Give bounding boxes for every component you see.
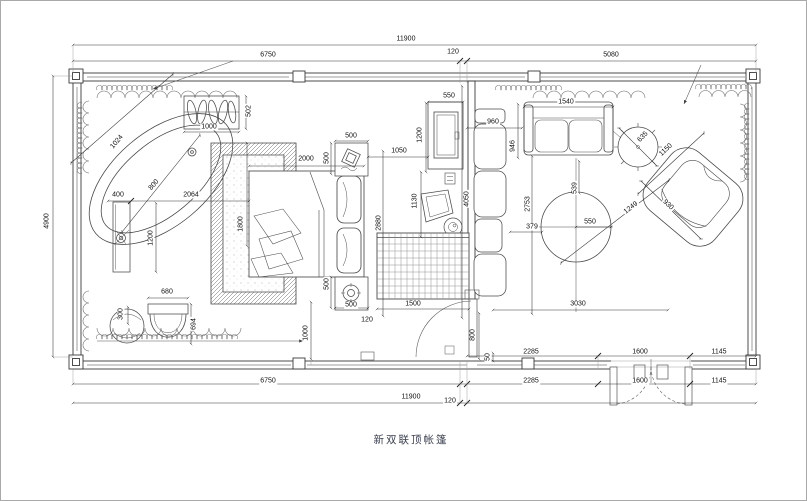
dimension-label: 4050 <box>464 190 471 208</box>
dimension-label: 500 <box>344 302 358 309</box>
dimension-label: 1600 <box>631 378 649 385</box>
dimension-label: 550 <box>583 219 597 226</box>
dimension-label: 3030 <box>569 301 587 308</box>
dimension-label: 502 <box>246 104 253 118</box>
tub-drain <box>188 148 196 156</box>
dimension-label: 11900 <box>401 394 422 401</box>
dimension-label: 1800 <box>238 215 245 233</box>
dimension-label: 800 <box>470 328 477 342</box>
dimension-label: 300 <box>118 307 125 321</box>
dimension-label: 6750 <box>259 378 277 385</box>
dimension-label: 1000 <box>303 324 310 342</box>
dimension-label: 2753 <box>525 195 532 213</box>
pillow <box>337 228 361 273</box>
walls <box>69 69 760 369</box>
nightstand-top <box>335 143 368 176</box>
stool <box>110 309 144 343</box>
dimension-label: 1145 <box>710 378 727 385</box>
bed <box>249 171 364 277</box>
dimension-label: 500 <box>344 133 358 140</box>
dimension-label: 946 <box>510 139 517 153</box>
dimension-label: 379 <box>525 224 539 231</box>
dimension-label: 4900 <box>44 212 51 230</box>
armchair <box>635 140 751 255</box>
dimension-label: 50 <box>485 352 492 362</box>
dimension-label: 120 <box>446 49 460 56</box>
lounge-chair <box>421 190 453 222</box>
tv-cabinet <box>428 102 463 169</box>
drawing-title: 新双联顶帐篷 <box>341 432 481 447</box>
dimension-label: 2064 <box>182 192 200 199</box>
switch-box <box>445 173 455 184</box>
sofa-left <box>474 109 506 296</box>
dimension-label: 11900 <box>396 36 417 43</box>
dimension-label: 1500 <box>404 301 422 308</box>
dimension-label: 2000 <box>297 156 315 163</box>
dimension-label: 120 <box>360 317 374 324</box>
dimension-label: 1200 <box>417 126 424 144</box>
toilet <box>148 304 188 337</box>
dimension-label: 2285 <box>522 349 540 356</box>
grid-rug <box>377 233 469 299</box>
double-door <box>610 358 692 405</box>
dimension-label: 1000 <box>200 124 218 131</box>
dimension-label: 1050 <box>390 148 408 155</box>
dimension-label: 1600 <box>631 349 649 356</box>
door-swing-arc <box>416 301 471 357</box>
dimension-label: 694 <box>191 317 198 331</box>
dimension-label: 550 <box>442 93 456 100</box>
door-leaf <box>610 367 617 405</box>
tv-screen <box>434 112 458 158</box>
dimension-label: 1130 <box>412 192 419 209</box>
cad-floorplan-canvas: 1190067501205080490010248001000502400206… <box>0 0 807 501</box>
dimension-label: 539 <box>572 181 579 195</box>
dimension-label: 1540 <box>557 99 575 106</box>
curtain-scallops <box>77 84 751 351</box>
dimension-label: 2285 <box>522 378 540 385</box>
dimension-lines <box>53 45 756 406</box>
dimension-label: 6750 <box>259 52 277 59</box>
dimension-label: 2880 <box>376 214 383 232</box>
sofa-top <box>524 102 613 155</box>
floorplan-drawing <box>1 1 807 501</box>
pillow <box>337 176 361 223</box>
dimension-label: 120 <box>443 398 457 405</box>
dimension-label: 680 <box>160 289 174 296</box>
vanity <box>113 202 130 272</box>
dimension-label: 1145 <box>710 349 727 356</box>
dimension-label: 5080 <box>602 52 620 59</box>
dimension-label: 960 <box>486 119 500 126</box>
columns <box>69 69 760 369</box>
dimension-label: 500 <box>324 151 331 165</box>
dimension-label: 400 <box>111 192 125 199</box>
dimension-label: 1200 <box>148 229 155 247</box>
dimension-label: 500 <box>324 277 331 291</box>
